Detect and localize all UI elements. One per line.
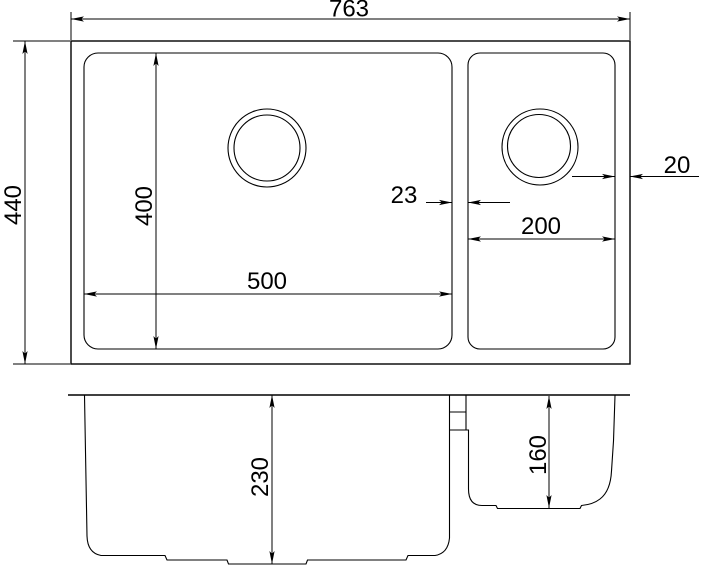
small-drain-outer-circle: [502, 109, 578, 185]
main-drain-inner-circle: [234, 115, 300, 181]
dim-160-label: 160: [525, 435, 552, 475]
dim-23-label: 23: [391, 182, 418, 209]
small-drain-inner-circle: [508, 115, 571, 178]
dim-440-label: 440: [0, 185, 27, 225]
dim-small-bowl-depth: 160: [525, 396, 552, 508]
dim-overall-width: 763: [71, 0, 630, 40]
sink-dimension-drawing: 763 440 400 500 2: [0, 0, 717, 573]
dim-right-rim-width: 20: [572, 152, 699, 179]
dim-main-bowl-width: 500: [84, 268, 452, 295]
dim-20-label: 20: [664, 152, 691, 179]
drawing-canvas: 763 440 400 500 2: [0, 0, 717, 573]
dim-200-label: 200: [521, 213, 561, 240]
dim-divider-width: 23: [391, 182, 510, 209]
dim-overall-depth: 440: [0, 41, 70, 364]
dim-small-bowl-width: 200: [468, 213, 615, 240]
dim-400-label: 400: [131, 186, 158, 226]
dim-500-label: 500: [247, 268, 287, 295]
main-drain-outer-circle: [228, 109, 306, 187]
small-bowl-outline: [468, 53, 615, 349]
dim-230-label: 230: [247, 457, 274, 497]
dim-main-bowl-depth: 230: [247, 395, 274, 564]
dim-main-bowl-front-to-back: 400: [131, 53, 158, 349]
dim-763-label: 763: [329, 0, 369, 23]
dimension-annotations: 763 440 400 500 2: [0, 0, 699, 564]
front-view: [68, 395, 630, 564]
